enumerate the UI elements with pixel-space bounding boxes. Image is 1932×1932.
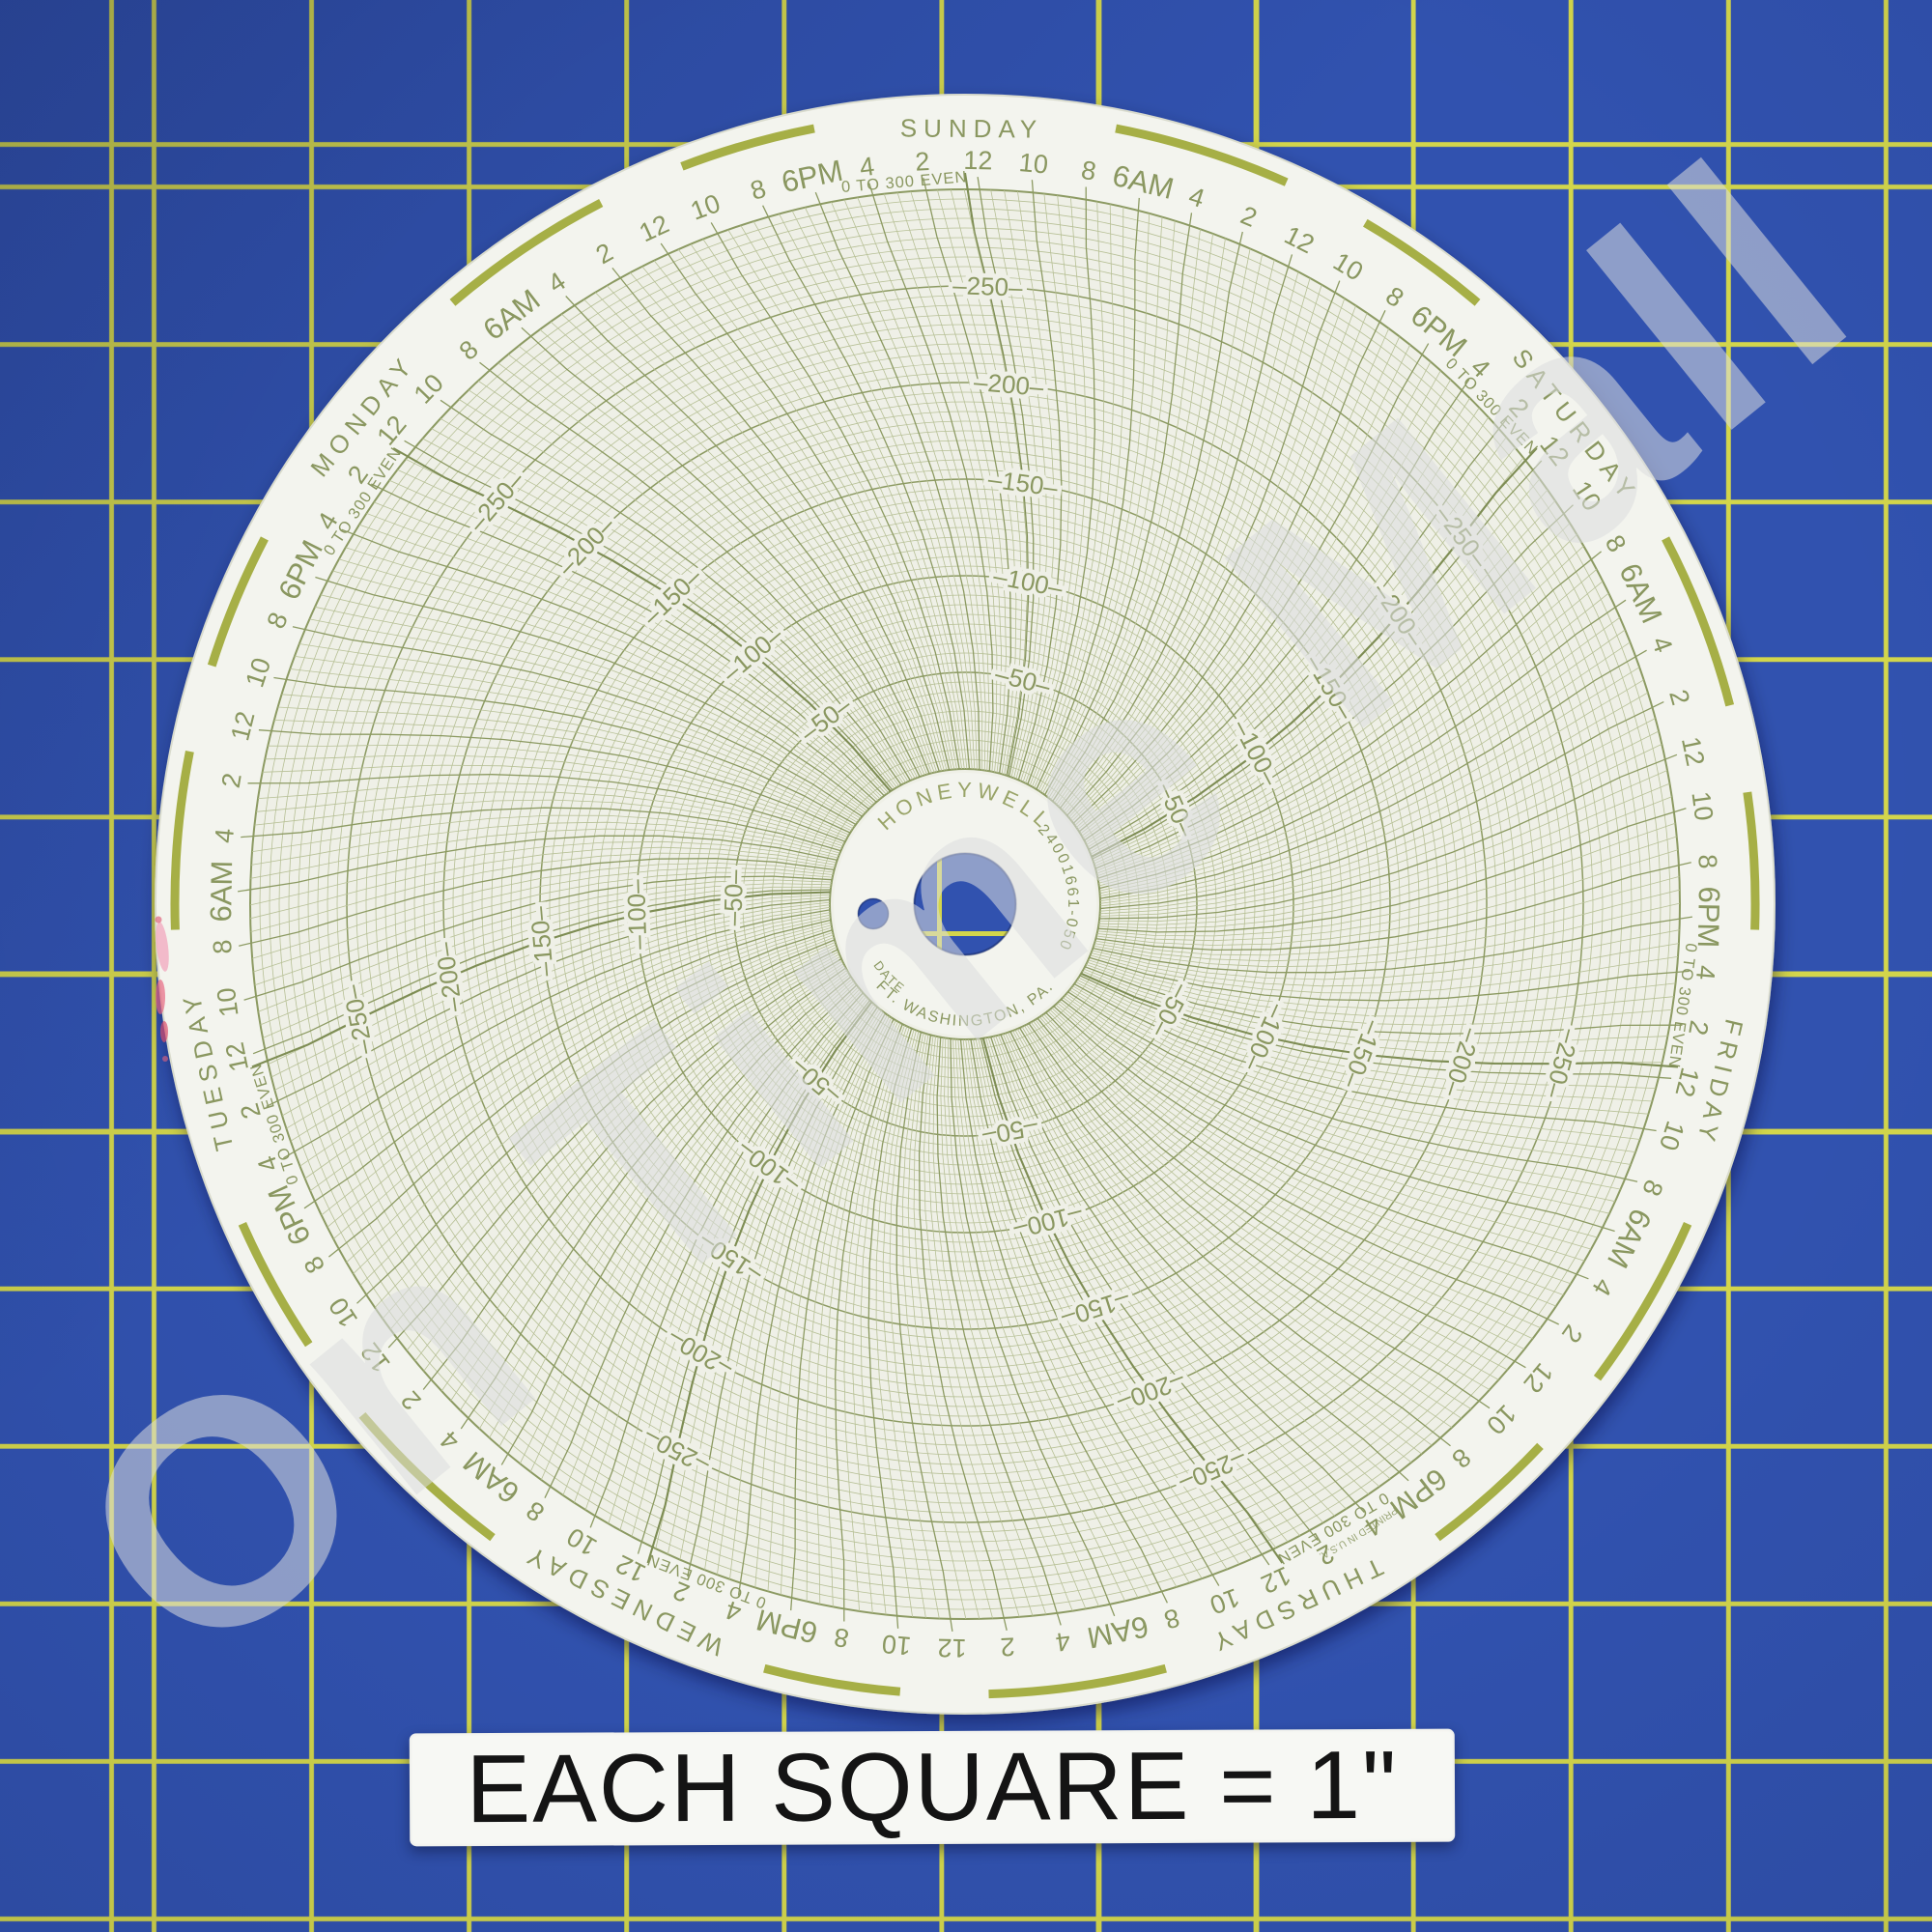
chart-svg: –50––100––150––200––250––50––100––150––2… [0, 0, 1932, 1932]
time-tick-label: 10 [1018, 148, 1050, 180]
time-tick-label: 8 [208, 939, 238, 955]
time-tick-label: 10 [881, 1629, 913, 1661]
time-tick-label: 8 [1692, 854, 1722, 870]
time-tick-label: 6PM [1691, 886, 1726, 948]
time-tick-label: 10 [212, 986, 244, 1019]
time-tick-label: 4 [210, 827, 240, 844]
svg-text:–50–: –50– [718, 868, 749, 925]
caption-text: EACH SQUARE = 1" [466, 1730, 1399, 1845]
time-tick-label: 10 [1686, 790, 1719, 823]
time-tick-label: 12 [937, 1634, 967, 1663]
svg-text:–150–: –150– [525, 905, 559, 978]
svg-text:–200–: –200– [973, 367, 1045, 402]
time-tick-label: 12 [1676, 734, 1711, 769]
time-tick-label: 6AM [204, 860, 239, 922]
photo-canvas: { "watermark": { "text": "On Time Mall" … [0, 0, 1932, 1932]
caption-strip: EACH SQUARE = 1" [410, 1729, 1456, 1847]
svg-text:–100–: –100– [621, 878, 652, 950]
time-tick-label: 2 [915, 147, 931, 177]
time-tick-label: 12 [963, 146, 993, 176]
center-hub: HONEYWELL 24001661-050 DATE FT. WASHINGT… [834, 773, 1096, 1036]
time-tick-label: 2 [1000, 1632, 1016, 1662]
svg-text:–250–: –250– [952, 270, 1024, 302]
day-label: SUNDAY [900, 113, 1044, 143]
chart-paper: –50––100––150––200––250––50––100––150––2… [0, 0, 1932, 1932]
